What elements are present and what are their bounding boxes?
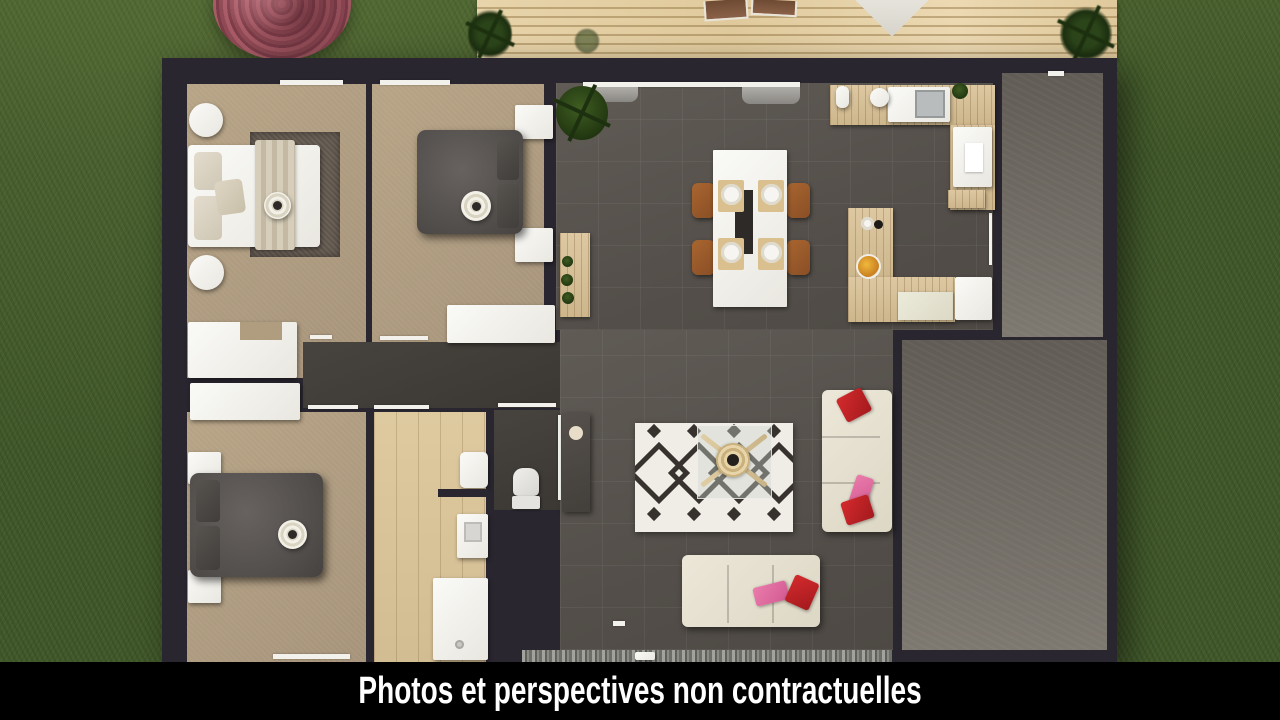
caption-text: Photos et perspectives non contractuelle… bbox=[358, 669, 921, 712]
door-garage-rear bbox=[1048, 71, 1064, 76]
bathroom-partition bbox=[438, 489, 488, 497]
oven-unit bbox=[955, 277, 992, 320]
bed-3-round-cushion bbox=[278, 520, 307, 549]
sideboard-plant-3 bbox=[562, 292, 574, 304]
window-bedroom-2 bbox=[380, 80, 450, 85]
hallway-floor bbox=[303, 342, 560, 408]
door-threshold-bedroom-1 bbox=[310, 335, 332, 339]
sofa-main-seam-1 bbox=[727, 565, 729, 623]
garage-floor-lower bbox=[902, 340, 1107, 650]
door-threshold-bathroom bbox=[374, 405, 429, 409]
fruit-bowl bbox=[858, 256, 879, 277]
entry-door-handle bbox=[613, 621, 625, 626]
toilet-bowl bbox=[513, 468, 539, 496]
nightstand-2-bottom bbox=[515, 228, 553, 262]
curtain-right bbox=[742, 87, 800, 104]
dining-chair-3 bbox=[787, 183, 810, 218]
gravel-path bbox=[522, 650, 892, 662]
plate-1 bbox=[721, 184, 742, 205]
toilet-tank bbox=[512, 496, 540, 509]
lounge-chair-1 bbox=[703, 0, 748, 22]
kitchen-plant bbox=[952, 83, 968, 99]
dining-chair-2 bbox=[692, 240, 715, 275]
washbasin-top bbox=[460, 452, 488, 488]
bed-3-pillow-top bbox=[196, 480, 220, 522]
bedroom-3-wardrobe bbox=[190, 383, 300, 420]
floor-plan-render: Photos et perspectives non contractuelle… bbox=[0, 0, 1280, 720]
sideboard-plant-2 bbox=[561, 274, 573, 286]
deck-plant-small bbox=[574, 28, 600, 54]
bed-2-round-cushion bbox=[461, 191, 491, 221]
shower-drain bbox=[455, 640, 464, 649]
sofa-side-seam-1 bbox=[822, 436, 880, 438]
console-bowl bbox=[569, 426, 583, 440]
doormat bbox=[635, 652, 655, 660]
indoor-plant bbox=[556, 86, 608, 140]
plate-2 bbox=[761, 184, 782, 205]
garage-floor-upper bbox=[1002, 73, 1103, 337]
lounge-chair-2 bbox=[751, 0, 798, 17]
rattan-decor-center bbox=[727, 454, 739, 466]
counter-pitcher bbox=[836, 86, 849, 108]
kitchen-wall-cabinet bbox=[948, 190, 985, 208]
fridge-cabinet-box bbox=[965, 143, 983, 172]
door-threshold-bedroom-2 bbox=[380, 336, 428, 340]
door-garage bbox=[989, 213, 992, 265]
sideboard-plant-1 bbox=[562, 256, 573, 267]
dishwasher bbox=[898, 292, 953, 320]
window-bedroom-3 bbox=[273, 654, 350, 659]
bedroom-2-wardrobe bbox=[447, 305, 555, 343]
bed-3-pillow-bottom bbox=[196, 526, 220, 570]
island-bowl-dark bbox=[874, 220, 883, 229]
kitchen-sink bbox=[915, 90, 945, 118]
bed-1-pillow-small bbox=[214, 178, 246, 216]
deck-plant-right bbox=[1060, 6, 1112, 62]
dining-chair-1 bbox=[692, 183, 715, 218]
caption-bar: Photos et perspectives non contractuelle… bbox=[0, 662, 1280, 720]
vanity-sink bbox=[464, 522, 482, 542]
wooden-deck bbox=[477, 0, 1117, 60]
door-wc bbox=[558, 415, 561, 500]
bed-1-round-cushion bbox=[264, 192, 291, 219]
bed-2-pillow-bottom bbox=[497, 184, 519, 228]
bed-2-pillow-top bbox=[497, 138, 519, 180]
window-bedroom-1 bbox=[280, 80, 343, 85]
counter-jar bbox=[870, 88, 889, 107]
bedroom-1-desk-notch bbox=[240, 322, 282, 340]
nightstand-round-bottom bbox=[189, 255, 224, 290]
island-plate bbox=[861, 217, 874, 230]
plate-4 bbox=[761, 242, 782, 263]
deck-plant-left bbox=[468, 8, 512, 60]
door-threshold-bedroom-3 bbox=[308, 405, 358, 409]
plate-3 bbox=[721, 242, 742, 263]
nightstand-round-top bbox=[189, 103, 223, 137]
door-threshold-wc bbox=[498, 403, 556, 407]
dining-chair-4 bbox=[787, 240, 810, 275]
